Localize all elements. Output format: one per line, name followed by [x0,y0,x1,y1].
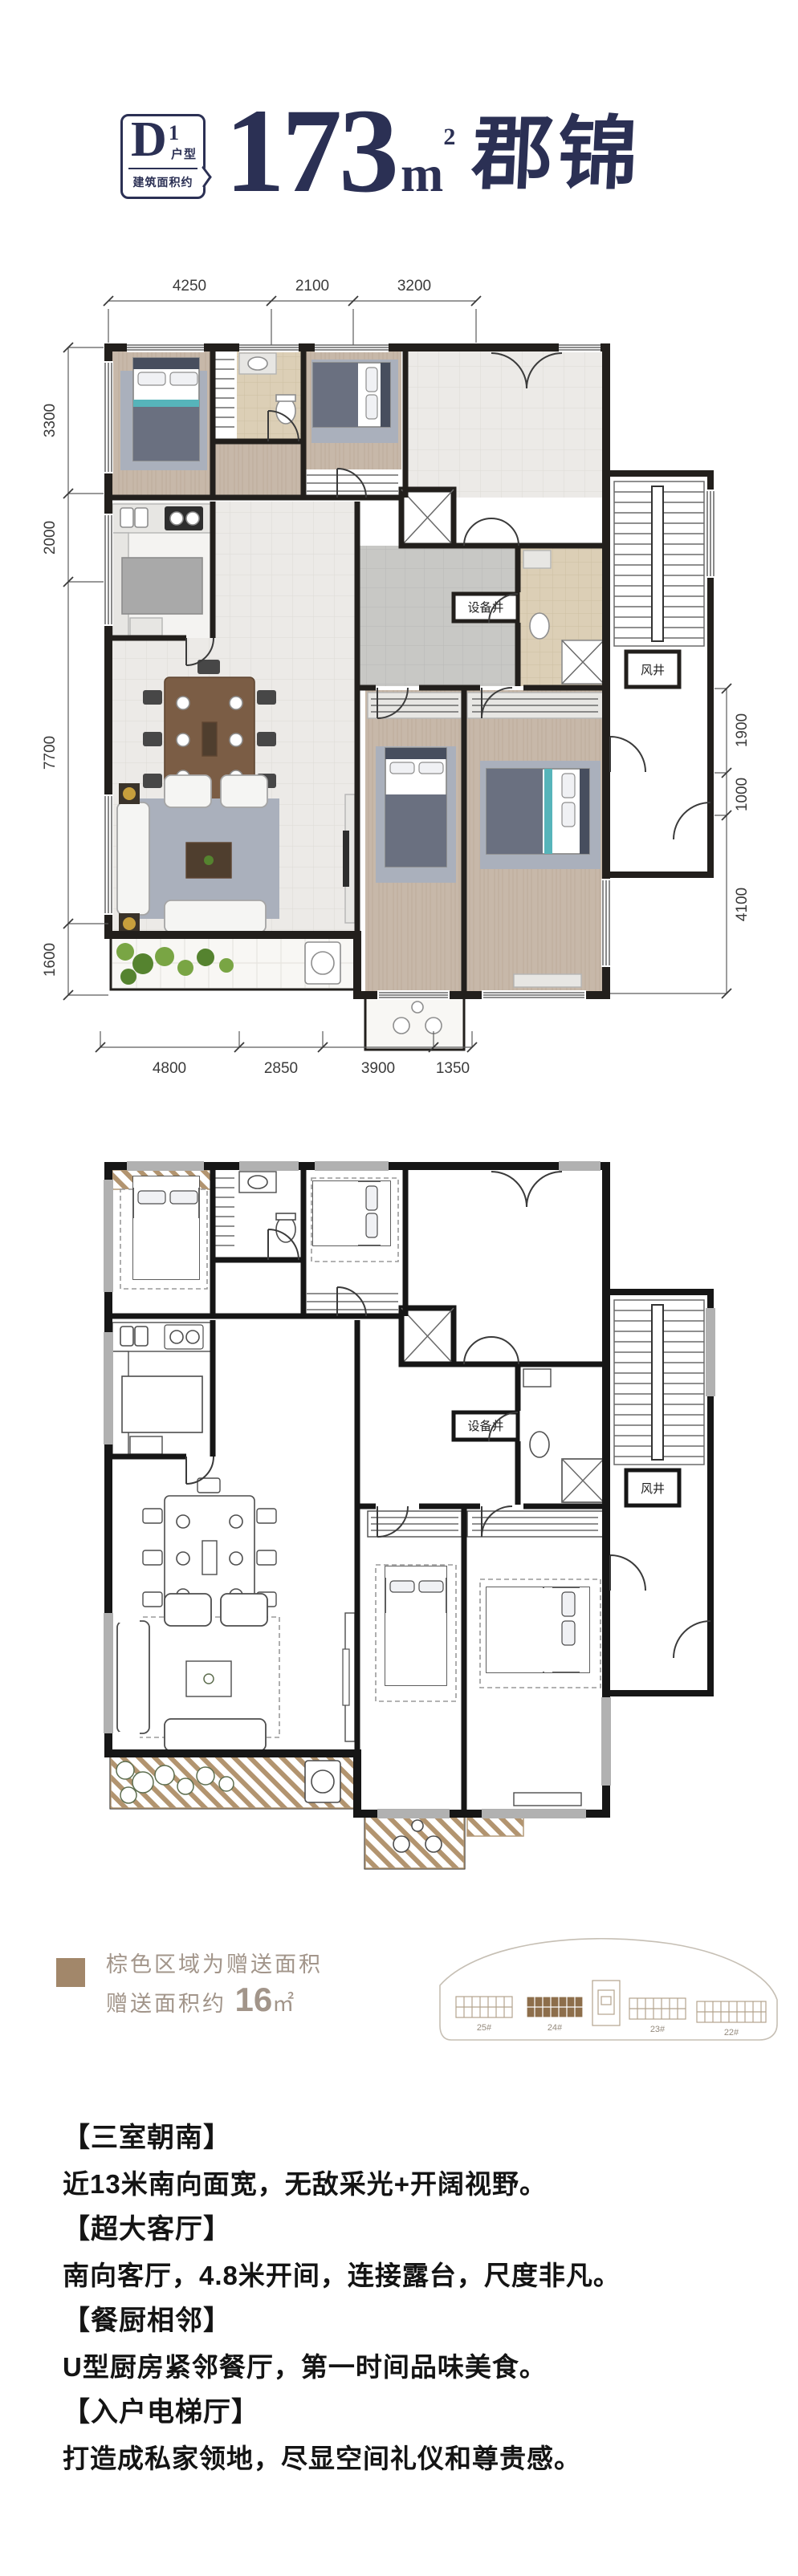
feature-4-title: 【入户电梯厅】 [63,2390,769,2436]
feature-2-desc: 南向客厅，4.8米开间，连接露台，尺度非凡。 [63,2253,769,2298]
dim-left-2: 2000 [42,521,59,555]
equipment-shaft: 设备井 [454,594,518,621]
feature-2-title: 【超大客厅】 [63,2207,769,2253]
feature-3-desc: U型厨房紧邻餐厅，第一时间品味美食。 [63,2344,769,2390]
building-24-label: 24# [548,2023,563,2033]
area-number: 173 [225,84,396,217]
floor-plan-schematic [0,1123,798,1894]
project-name: 郡锦 [470,88,647,205]
header: D 1 户型 建筑面积约 173m2郡锦 [0,95,798,223]
building-23-label: 23# [650,2025,666,2034]
apartment-geometry: 设备井 风井 [104,343,715,1050]
feature-3-title: 【餐厨相邻】 [63,2298,769,2344]
legend-text: 棕色区域为赠送面积 赠送面积约 16㎡ [106,1947,323,2021]
badge-divider [128,168,197,169]
tv [343,831,349,887]
building-25-label: 25# [477,2023,492,2033]
dim-bottom-1: 4800 [153,1060,186,1077]
feature-1-desc: 近13米南向面宽，无敌采光+开阔视野。 [63,2161,769,2207]
dim-left-3: 7700 [42,736,59,770]
site-mini-map: 25# 24# 23# 22# [434,1920,787,2054]
unit-letter: D [131,112,167,169]
site-core-block [592,1981,620,2025]
wardrobe-1 [213,351,237,441]
floor-plan-rendered: 设备井 风井 [0,241,798,1091]
legend-line-1: 棕色区域为赠送面积 [106,1947,323,1982]
gift-area-unit: ㎡ [272,1992,296,2016]
dim-top-2: 2100 [295,278,329,295]
dim-right-2: 1000 [734,778,751,811]
bed-2 [311,360,398,443]
dim-right-1: 1900 [734,713,751,747]
area-label: 建筑面积约 [123,174,203,190]
wind-shaft-label: 风井 [641,664,665,677]
legend-line-2: 赠送面积约 16㎡ [106,1982,323,2021]
unit-number: 1 [169,121,179,145]
washer [305,942,340,984]
dim-left-4: 1600 [42,943,59,977]
bed-1 [120,358,207,470]
dim-left-1: 3300 [42,404,59,437]
page-title: 173m2郡锦 [225,82,643,220]
area-exponent: 2 [443,124,455,150]
dim-top-1: 4250 [173,278,206,295]
gift-area-value: 16 [235,1981,273,2018]
dim-right-3: 4100 [734,888,751,921]
building-22-label: 22# [724,2028,739,2038]
feature-1-title: 【三室朝南】 [63,2115,769,2161]
elevator-shaft [401,490,454,546]
hallway-floor [213,441,303,498]
dim-top-3: 3200 [397,278,431,295]
unit-type-label: 户型 [171,145,197,162]
equipment-shaft-label: 设备井 [467,601,503,615]
dim-bottom-4: 1350 [436,1060,470,1077]
gift-area-swatch [56,1958,85,1987]
feature-4-desc: 打造成私家领地，尽显空间礼仪和尊贵感。 [63,2436,769,2481]
foyer-floor [405,351,606,498]
unit-type-badge: D 1 户型 建筑面积约 [120,114,206,199]
wind-shaft: 风井 [626,652,679,687]
dim-bottom-3: 3900 [361,1060,395,1077]
area-unit: m [401,145,443,202]
feature-list: 【三室朝南】 近13米南向面宽，无敌采光+开阔视野。 【超大客厅】 南向客厅，4… [63,2115,769,2481]
floorplan-poster: D 1 户型 建筑面积约 173m2郡锦 [0,0,798,2576]
dim-bottom-2: 2850 [264,1060,298,1077]
